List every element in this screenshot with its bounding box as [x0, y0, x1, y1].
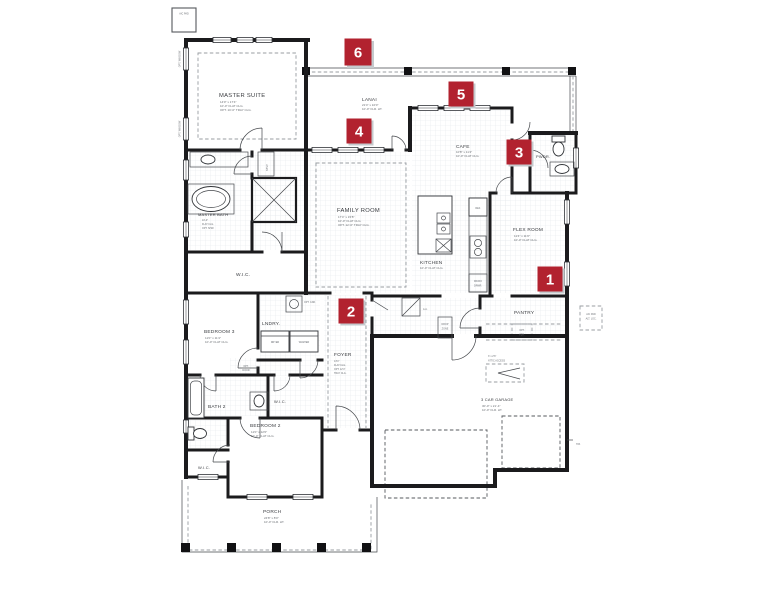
hose-bib-label: H.B. [576, 443, 581, 446]
room-label-bedroom2: BEDROOM 2 11'0" x 12'0" 10'-0" FLAT CLG. [250, 423, 281, 438]
room-label-wic-bed2: W.I.C. [198, 465, 210, 470]
room-label-powder: PWDR. [536, 154, 550, 159]
svg-text:OPT. 10'-0" TRAY CLG.: OPT. 10'-0" TRAY CLG. [220, 108, 252, 112]
svg-text:TRAY CLG.: TRAY CLG. [334, 372, 347, 375]
room-label-lanai: LANAI 21'4" x 10'0" 10'-0" FLR. HT. [362, 97, 382, 111]
ac-pad-alt-label-2: ALT. LOC. [586, 318, 597, 321]
room-label-master-suite: MASTER SUITE 14'0" x 17'4" 10'-0" FLAT C… [219, 93, 265, 112]
svg-text:10'-0" FLAT CLG.: 10'-0" FLAT CLG. [251, 434, 275, 438]
attic-access-garage [486, 364, 524, 382]
svg-text:OPT. 12'4": OPT. 12'4" [334, 368, 345, 371]
svg-text:PORCH: PORCH [263, 509, 282, 515]
porch-column [317, 543, 326, 552]
svg-text:LNDRY.: LNDRY. [262, 321, 280, 327]
porch-column [272, 543, 281, 552]
porch-column [181, 543, 190, 552]
svg-text:10'-0" FLAT CLG.: 10'-0" FLAT CLG. [420, 266, 444, 270]
porch-structure [181, 480, 377, 552]
svg-text:DOOR: DOOR [242, 369, 249, 372]
svg-text:FAMILY ROOM: FAMILY ROOM [337, 208, 380, 214]
svg-text:5: 5 [457, 86, 465, 103]
marker-2[interactable]: 2 [339, 299, 366, 326]
linen-label: LINEN [265, 164, 268, 171]
svg-text:MASTER SUITE: MASTER SUITE [219, 93, 265, 99]
svg-text:FLEX ROOM: FLEX ROOM [513, 227, 543, 233]
opt-window-label: OPT. WINDOW [179, 120, 182, 137]
svg-text:BEDROOM 2: BEDROOM 2 [250, 423, 281, 429]
svg-text:OPT. CAB.: OPT. CAB. [304, 301, 316, 304]
svg-text:3: 3 [515, 144, 523, 161]
svg-text:13'4": 13'4" [334, 360, 339, 363]
svg-text:2: 2 [347, 303, 355, 320]
svg-text:FZR.: FZR. [519, 334, 525, 337]
svg-text:FLAT CLG.: FLAT CLG. [334, 364, 346, 367]
opt-window-label: OPT. WINDOW [179, 50, 182, 67]
master-shower [252, 178, 296, 222]
svg-text:REF.: REF. [475, 207, 481, 210]
floor-plan-drawing: A/C PAD A/C PAD ALT. LOC. H.B. OPT. WIND… [0, 0, 765, 600]
svg-text:PANTRY: PANTRY [514, 310, 535, 316]
svg-text:10'-0" FLAT CLG.: 10'-0" FLAT CLG. [456, 154, 480, 158]
svg-text:FOYER: FOYER [334, 352, 352, 358]
floor-plan-page: A/C PAD A/C PAD ALT. LOC. H.B. OPT. WIND… [0, 0, 765, 600]
svg-text:DRYER: DRYER [271, 341, 280, 344]
room-label-kitchen: KITCHEN 10'-0" FLAT CLG. [420, 260, 444, 270]
marker-4[interactable]: 4 [347, 119, 374, 146]
svg-text:ATTIC ACCESS: ATTIC ACCESS [488, 360, 505, 363]
svg-text:3' x 2'6": 3' x 2'6" [488, 355, 496, 358]
svg-text:DROP: DROP [442, 323, 449, 326]
svg-text:10'-0" FLR. HT.: 10'-0" FLR. HT. [482, 408, 502, 412]
svg-text:4: 4 [355, 123, 364, 140]
room-label-wic-hall: W.I.C. [274, 399, 286, 404]
marker-1[interactable]: 1 [538, 267, 565, 294]
lanai-post [502, 67, 510, 75]
svg-text:BEDROOM 3: BEDROOM 3 [204, 329, 235, 335]
svg-text:MASTER BATH: MASTER BATH [198, 212, 228, 217]
svg-text:10'-0" FLAT CLG.: 10'-0" FLAT CLG. [514, 238, 538, 242]
porch-column [227, 543, 236, 552]
svg-text:10'-0" FLR. HT.: 10'-0" FLR. HT. [264, 520, 284, 524]
room-label-wic-master: W.I.C. [236, 272, 250, 278]
marker-3[interactable]: 3 [507, 140, 534, 167]
ac-pad-label: A/C PAD [179, 13, 189, 16]
svg-text:3 CAR GARAGE: 3 CAR GARAGE [481, 397, 514, 402]
garage-door-right [502, 416, 560, 468]
svg-text:OPT.: OPT. [519, 329, 525, 332]
marker-5[interactable]: 5 [449, 82, 476, 109]
svg-text:FLAT CLG.: FLAT CLG. [202, 223, 214, 226]
svg-text:OPT. 12'-0" TRAY CLG.: OPT. 12'-0" TRAY CLG. [338, 223, 370, 227]
room-label-bath2: BATH 2 [208, 404, 226, 410]
svg-text:10'-0" FLAT CLG.: 10'-0" FLAT CLG. [205, 340, 229, 344]
svg-text:OPT. SHW.: OPT. SHW. [202, 227, 214, 230]
svg-text:MICRO: MICRO [474, 280, 482, 283]
svg-text:6: 6 [354, 45, 362, 62]
svg-text:10'-0" FLR. HT.: 10'-0" FLR. HT. [362, 107, 382, 111]
porch-column [362, 543, 371, 552]
room-label-porch: PORCH 24'8" x 8'0" 10'-0" FLR. HT. [263, 509, 284, 524]
svg-text:DRWR.: DRWR. [474, 285, 482, 288]
lanai-post [568, 67, 576, 75]
svg-text:A.A.: A.A. [423, 308, 428, 311]
kitchen-island [418, 196, 452, 254]
svg-text:10'-0": 10'-0" [202, 219, 208, 222]
ac-pad-alt-label-1: A/C PAD [586, 313, 596, 316]
svg-text:1: 1 [546, 271, 554, 288]
svg-text:WASHER: WASHER [299, 341, 310, 344]
svg-text:ZONE: ZONE [442, 328, 449, 331]
svg-text:OPT.: OPT. [243, 365, 249, 368]
marker-6[interactable]: 6 [345, 39, 375, 69]
room-label-bedroom3: BEDROOM 3 11'0" x 11'4" 10'-0" FLAT CLG. [204, 329, 235, 344]
powder-toilet [552, 136, 565, 156]
lanai-post [404, 67, 412, 75]
